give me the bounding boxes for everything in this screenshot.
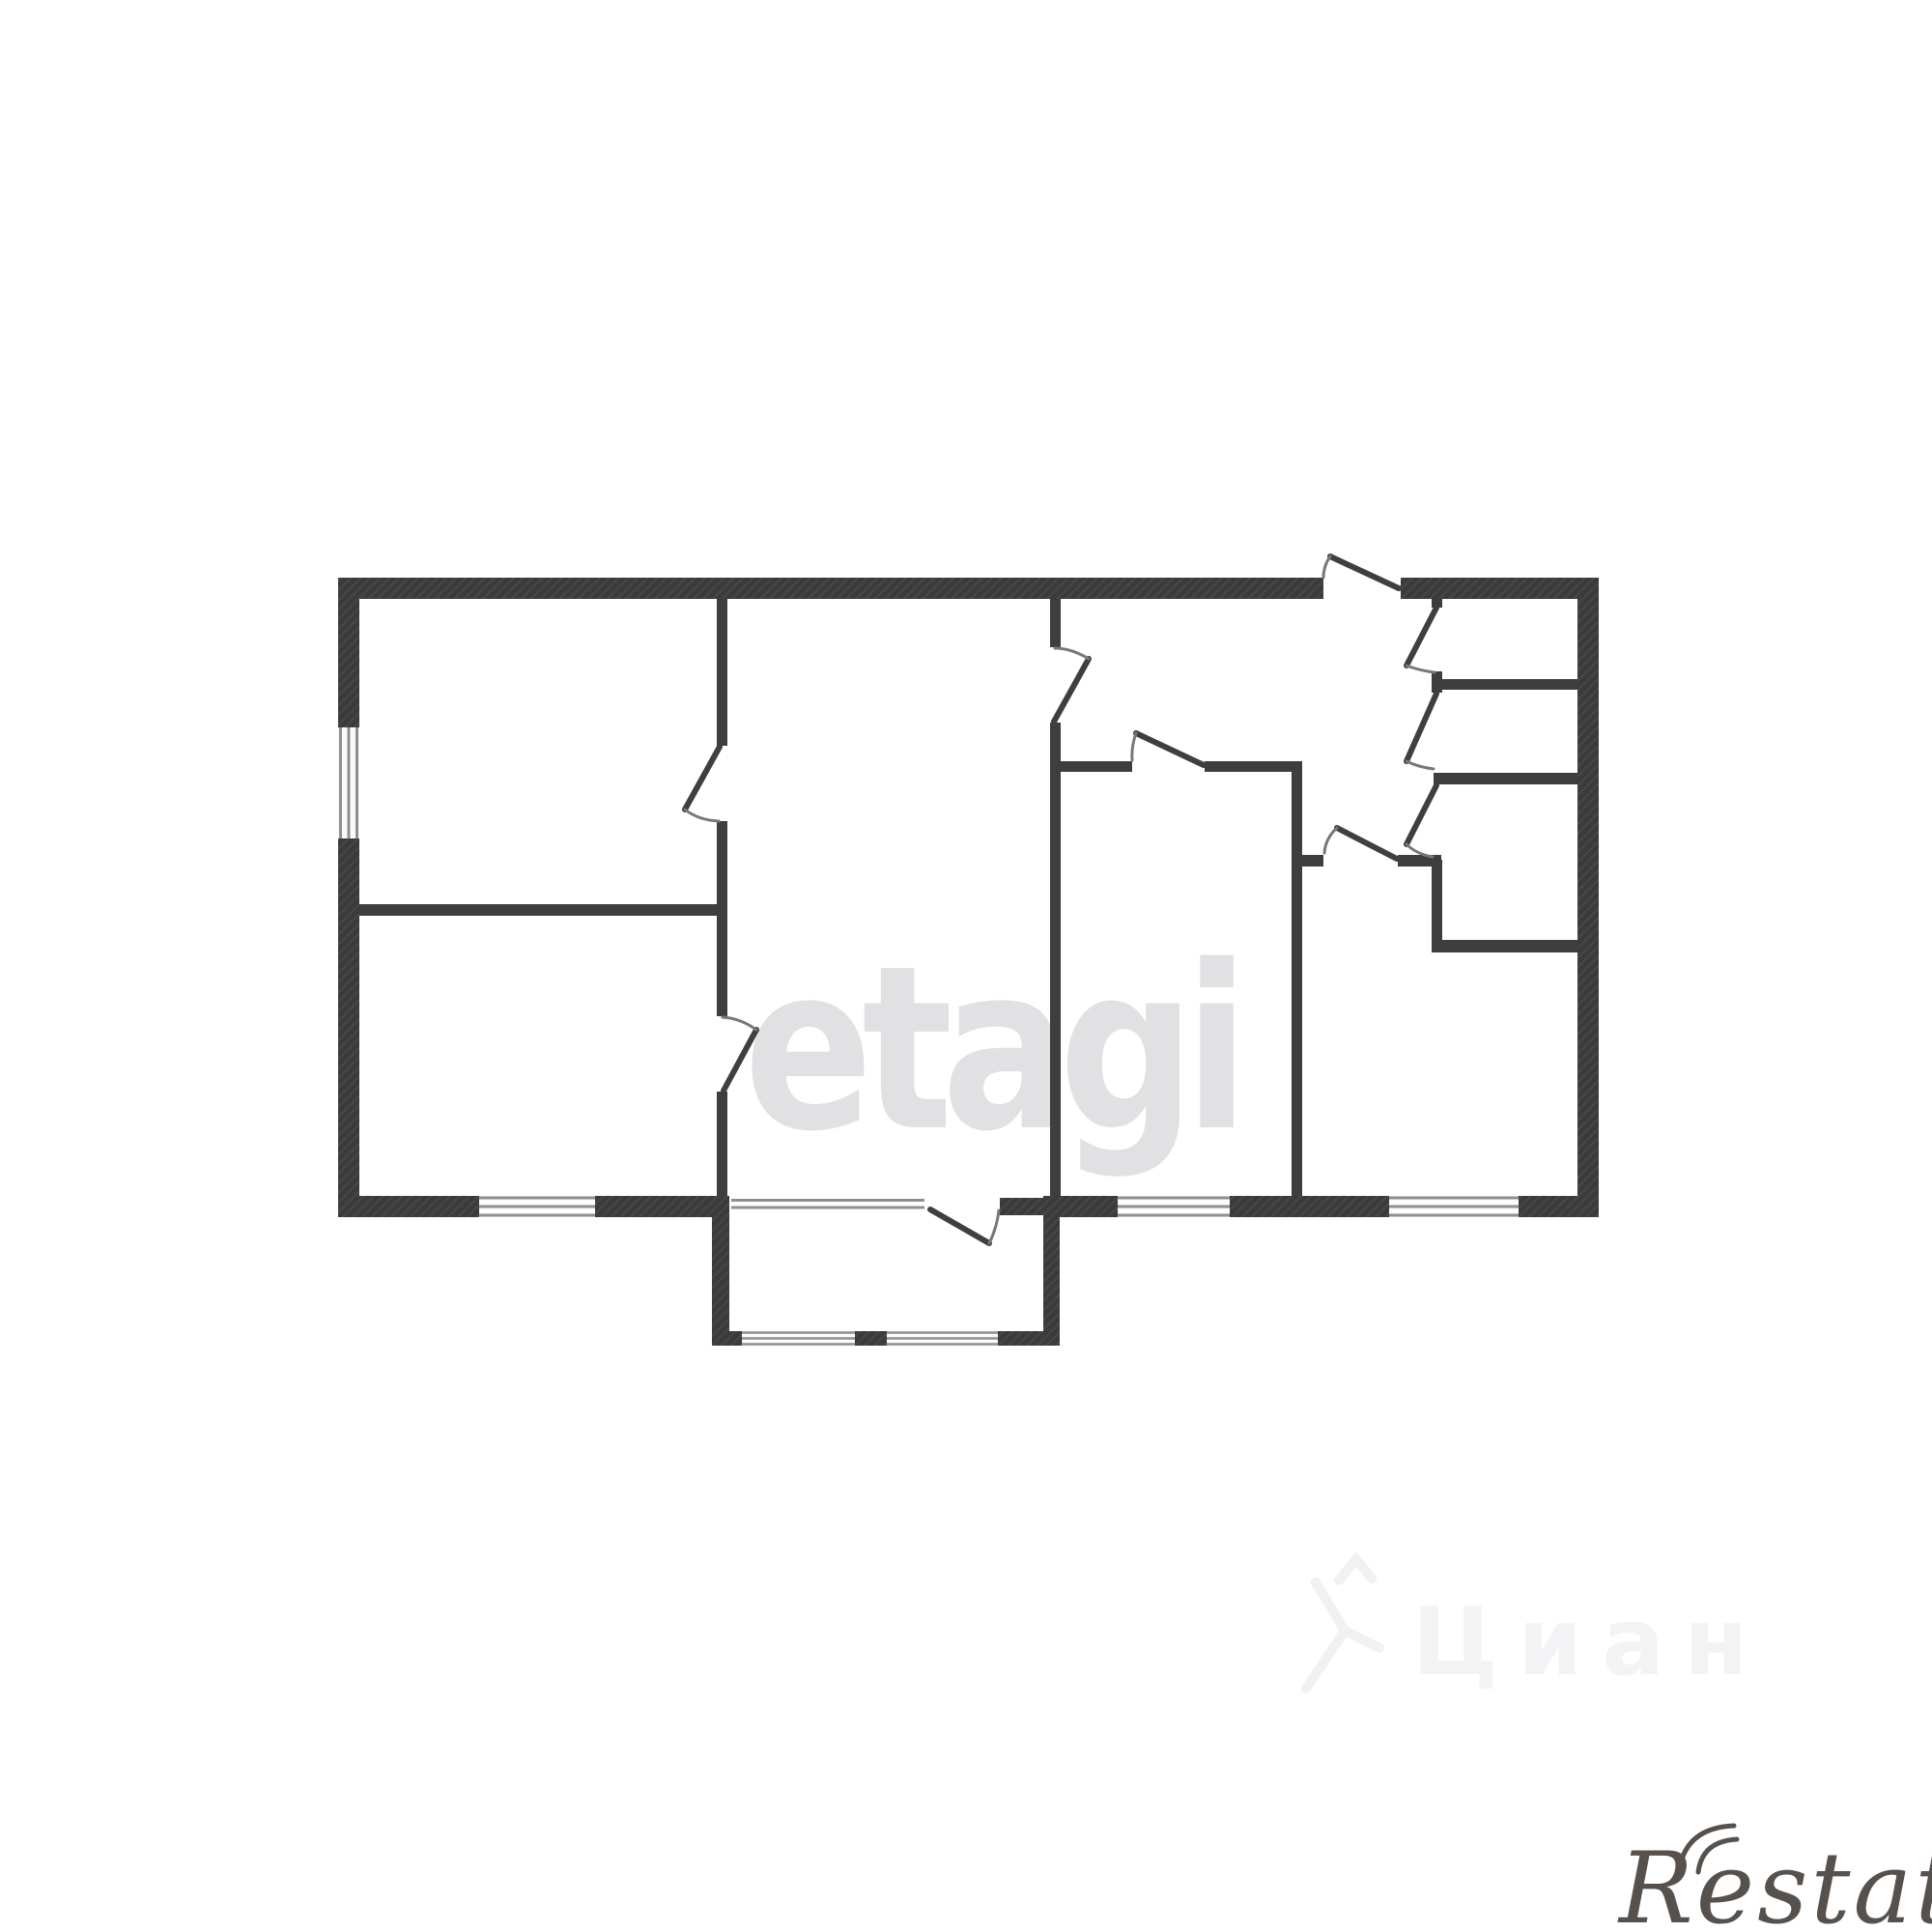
window-balcony-right xyxy=(887,1331,998,1346)
interior-walls xyxy=(359,599,1577,1196)
door-bottom-right-room xyxy=(1324,828,1397,859)
window-bottom-right-room xyxy=(1389,1196,1519,1217)
window-left-wall xyxy=(338,727,359,838)
windows xyxy=(338,727,1519,1346)
balcony-door xyxy=(930,1209,999,1243)
door-middle-right-room xyxy=(1132,733,1204,765)
door-bottom-left-room xyxy=(723,1017,756,1091)
window-bottom-left-room xyxy=(479,1196,595,1217)
entry-door xyxy=(1323,556,1399,588)
door-top-left-room xyxy=(685,747,720,821)
floor-plan-image: etagi Циан xyxy=(0,0,1932,1932)
window-balcony-left xyxy=(742,1331,855,1346)
outer-walls xyxy=(338,578,1599,1217)
cian-bird-icon xyxy=(1306,1559,1379,1689)
door-living-to-hallway xyxy=(1054,648,1089,722)
door-right-room-3 xyxy=(1406,785,1436,857)
floor-plan-drawing xyxy=(0,0,1932,1932)
restate-watermark: Restate xyxy=(1619,1840,1932,1932)
window-middle-right-room xyxy=(1118,1196,1230,1217)
door-right-room-2 xyxy=(1406,694,1436,769)
window-living-to-balcony xyxy=(731,1198,924,1209)
door-right-room-1 xyxy=(1406,608,1436,672)
balcony-walls xyxy=(712,1196,1060,1346)
